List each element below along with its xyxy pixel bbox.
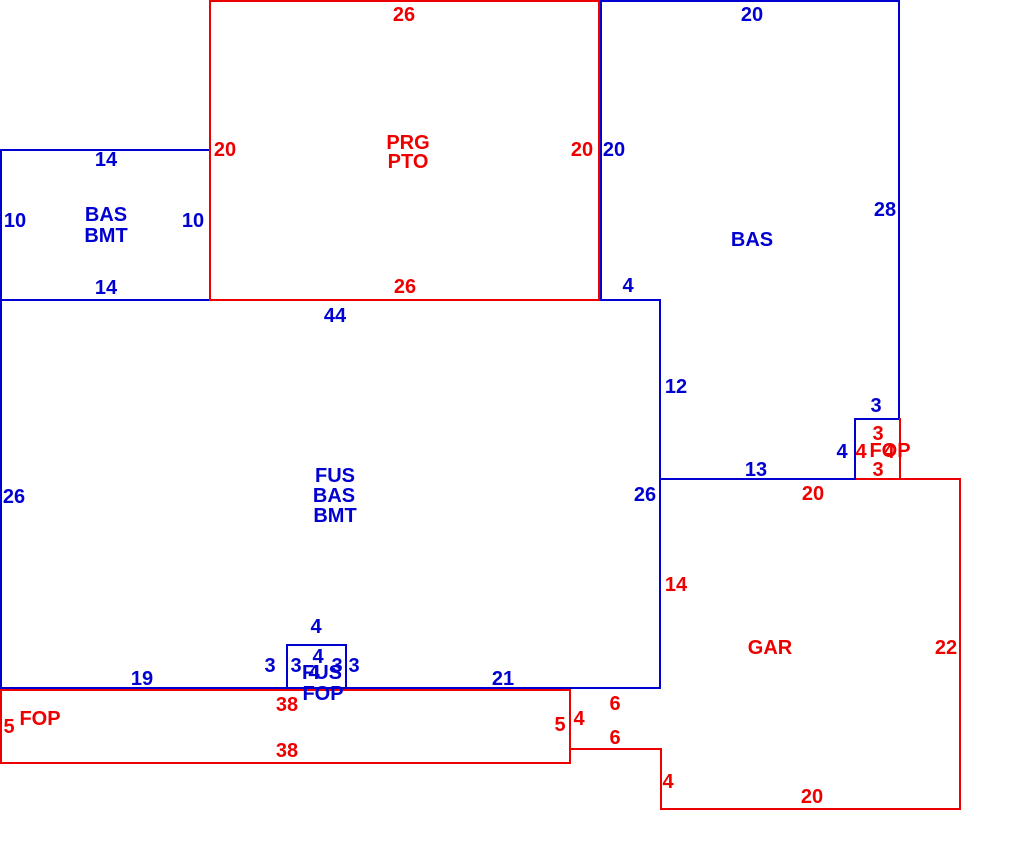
prg-right-edge (598, 0, 600, 301)
dim-bas-notch-3: 3 (870, 396, 881, 416)
dim-fop-right-5: 5 (554, 715, 565, 735)
dim-stoop-bottom-3: 3 (872, 460, 883, 480)
dim-bas-notch-4: 4 (836, 442, 847, 462)
dim-gar-top-20: 20 (802, 484, 824, 504)
dim-prg-bottom-26: 26 (394, 277, 416, 297)
dim-gar-right-22: 22 (935, 638, 957, 658)
dim-stoop-left-4: 4 (855, 442, 866, 462)
fop-strip-right-edge (569, 689, 571, 764)
area-prg-line2: PTO (388, 152, 429, 172)
area-bmt-line2: BMT (84, 226, 127, 246)
area-fus-line1: FUS (315, 466, 355, 486)
dim-fop-bottom-38: 38 (276, 741, 298, 761)
dim-gar-notch-bot-6: 6 (609, 728, 620, 748)
dim-bas-side-12: 12 (665, 377, 687, 397)
area-bump-line2: FOP (302, 684, 343, 704)
dim-bmt-bottom-14: 14 (95, 278, 117, 298)
dim-gar-notch-top-6: 6 (609, 694, 620, 714)
dim-bmt-left-10: 10 (4, 211, 26, 231)
dim-prg-left-20: 20 (214, 140, 236, 160)
west-edge (0, 149, 2, 689)
area-bump-line1: FUS (302, 663, 342, 683)
dim-fus-top-44: 44 (324, 306, 346, 326)
dim-bas-right-28: 28 (874, 200, 896, 220)
dim-fus-bottom-19: 19 (131, 669, 153, 689)
area-bas-right: BAS (731, 230, 773, 250)
bump-left-edge (286, 644, 288, 689)
dim-bas-bottom-13: 13 (745, 460, 767, 480)
dim-stoop-right-4: 4 (883, 442, 894, 462)
dim-prg-top-26: 26 (393, 5, 415, 25)
dim-bas-top-20: 20 (741, 5, 763, 25)
area-fus-line2: BAS (313, 486, 355, 506)
dim-bmt-top-14: 14 (95, 150, 117, 170)
dim-prg-right-20: 20 (571, 140, 593, 160)
area-fop-strip: FOP (19, 709, 60, 729)
prg-left-edge (209, 0, 211, 301)
bas-left-edge (600, 0, 602, 301)
dim-fus-left-26: 26 (3, 487, 25, 507)
prg-top-edge (209, 0, 599, 2)
gar-right-edge (959, 478, 961, 810)
sketch-canvas[interactable]: 14101014BASBMT2620PRGPTO2026202028BAS412… (0, 0, 1010, 868)
dim-fop-left-5: 5 (3, 717, 14, 737)
gar-bottom-edge (660, 808, 961, 810)
fus-right-edge (659, 299, 661, 689)
dim-gar-left-14: 14 (665, 575, 687, 595)
bump-right-edge (345, 644, 347, 689)
dim-gar-step-4: 4 (662, 772, 673, 792)
area-fus-line3: BMT (313, 506, 356, 526)
dim-gar-bottom-20: 20 (801, 787, 823, 807)
fop-strip-left-edge (0, 689, 2, 764)
fop-strip-bottom-edge (0, 762, 571, 764)
area-bmt-line1: BAS (85, 205, 127, 225)
dim-fus-bottom-21: 21 (492, 669, 514, 689)
prg-bottom-edge (209, 299, 599, 301)
dim-bas-step-4: 4 (622, 276, 633, 296)
dim-bump-left-in-3: 3 (290, 656, 301, 676)
area-gar: GAR (748, 638, 792, 658)
fop-strip-top-edge (0, 689, 571, 691)
dim-fop-top-38: 38 (276, 695, 298, 715)
bas-notch-top-edge (854, 418, 900, 420)
dim-bump-top-out-4: 4 (310, 617, 321, 637)
dim-bump-right-out-3: 3 (348, 656, 359, 676)
dim-bmt-right-10: 10 (182, 211, 204, 231)
dim-fus-right-26: 26 (634, 485, 656, 505)
dim-gar-notch-side-4: 4 (573, 709, 584, 729)
dim-bump-left-out-3: 3 (264, 656, 275, 676)
dim-bas-left-20: 20 (603, 140, 625, 160)
area-prg-line1: PRG (386, 133, 429, 153)
bas-top-edge (600, 0, 900, 2)
bas-right-edge (898, 0, 900, 420)
